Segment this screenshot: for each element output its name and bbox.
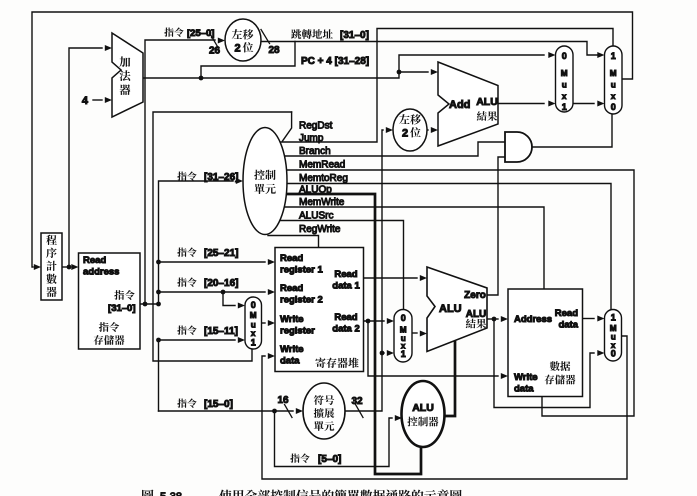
- svg-text:ALUOp: ALUOp: [299, 185, 332, 196]
- svg-text:ALU: ALU: [466, 309, 487, 320]
- svg-text:5-38: 5-38: [160, 491, 182, 496]
- svg-text:data 1: data 1: [332, 281, 360, 292]
- svg-text:RegDst: RegDst: [299, 121, 333, 132]
- svg-text:Write: Write: [514, 372, 538, 383]
- svg-text:Read: Read: [334, 312, 357, 323]
- svg-text:1: 1: [251, 338, 256, 348]
- svg-text:register 1: register 1: [280, 265, 323, 276]
- svg-text:ALU: ALU: [412, 402, 434, 414]
- svg-text:Address: Address: [514, 314, 552, 325]
- svg-text:[15–0]: [15–0]: [204, 399, 233, 410]
- svg-text:0: 0: [562, 51, 567, 61]
- svg-text:Zero: Zero: [464, 290, 486, 301]
- svg-text:PC + 4 [31–28]: PC + 4 [31–28]: [301, 56, 369, 67]
- svg-text:ALU: ALU: [439, 303, 462, 315]
- svg-text:register: register: [280, 326, 315, 337]
- svg-text:4: 4: [82, 95, 89, 107]
- svg-text:1: 1: [562, 102, 567, 112]
- svg-text:Read: Read: [334, 269, 357, 280]
- svg-text:Add: Add: [449, 99, 470, 111]
- svg-text:0: 0: [611, 102, 616, 112]
- svg-text:Write: Write: [280, 344, 304, 355]
- svg-text:MemtoReg: MemtoReg: [299, 173, 348, 184]
- svg-text:28: 28: [268, 45, 280, 56]
- svg-text:1: 1: [401, 349, 406, 359]
- svg-text:Read: Read: [280, 283, 303, 294]
- svg-text:data: data: [280, 356, 300, 367]
- svg-text:2: 2: [234, 43, 240, 55]
- svg-text:u: u: [562, 81, 567, 90]
- svg-text:0: 0: [611, 349, 616, 359]
- svg-text:Read: Read: [555, 308, 578, 319]
- svg-text:u: u: [611, 81, 616, 90]
- svg-text:[20–16]: [20–16]: [204, 278, 238, 289]
- svg-text:MemWrite: MemWrite: [299, 197, 345, 208]
- svg-text:x: x: [611, 92, 616, 101]
- svg-text:[31–26]: [31–26]: [204, 172, 238, 183]
- svg-text:Branch: Branch: [299, 146, 331, 157]
- svg-text:x: x: [562, 92, 567, 101]
- svg-text:16: 16: [277, 395, 289, 406]
- svg-text:1: 1: [611, 51, 616, 61]
- svg-text:MemRead: MemRead: [299, 160, 345, 171]
- svg-text:[25–0]: [25–0]: [187, 28, 214, 39]
- svg-text:register 2: register 2: [280, 295, 323, 306]
- svg-text:[5–0]: [5–0]: [318, 454, 341, 465]
- svg-text:Jump: Jump: [299, 133, 324, 144]
- svg-text:M: M: [250, 311, 257, 320]
- svg-text:data: data: [514, 384, 534, 395]
- svg-text:Read: Read: [280, 253, 303, 264]
- svg-text:[25–21]: [25–21]: [204, 248, 238, 259]
- svg-text:Read: Read: [83, 255, 106, 266]
- svg-text:[31–0]: [31–0]: [340, 30, 369, 41]
- svg-text:0: 0: [251, 300, 256, 310]
- svg-text:2: 2: [402, 128, 408, 140]
- svg-text:RegWrite: RegWrite: [299, 224, 341, 235]
- svg-text:data 2: data 2: [332, 324, 359, 335]
- svg-text:ALU: ALU: [476, 96, 498, 108]
- svg-text:address: address: [83, 267, 119, 278]
- svg-text:26: 26: [209, 46, 221, 57]
- svg-text:M: M: [561, 69, 568, 78]
- svg-text:[15–11]: [15–11]: [204, 326, 238, 337]
- svg-text:data: data: [558, 320, 578, 331]
- svg-text:M: M: [610, 69, 617, 78]
- svg-text:ALUSrc: ALUSrc: [299, 211, 333, 222]
- svg-text:32: 32: [351, 396, 363, 407]
- svg-text:[31–0]: [31–0]: [108, 303, 135, 314]
- svg-text:0: 0: [401, 313, 406, 323]
- svg-text:1: 1: [611, 313, 616, 323]
- svg-text:Write: Write: [280, 314, 304, 325]
